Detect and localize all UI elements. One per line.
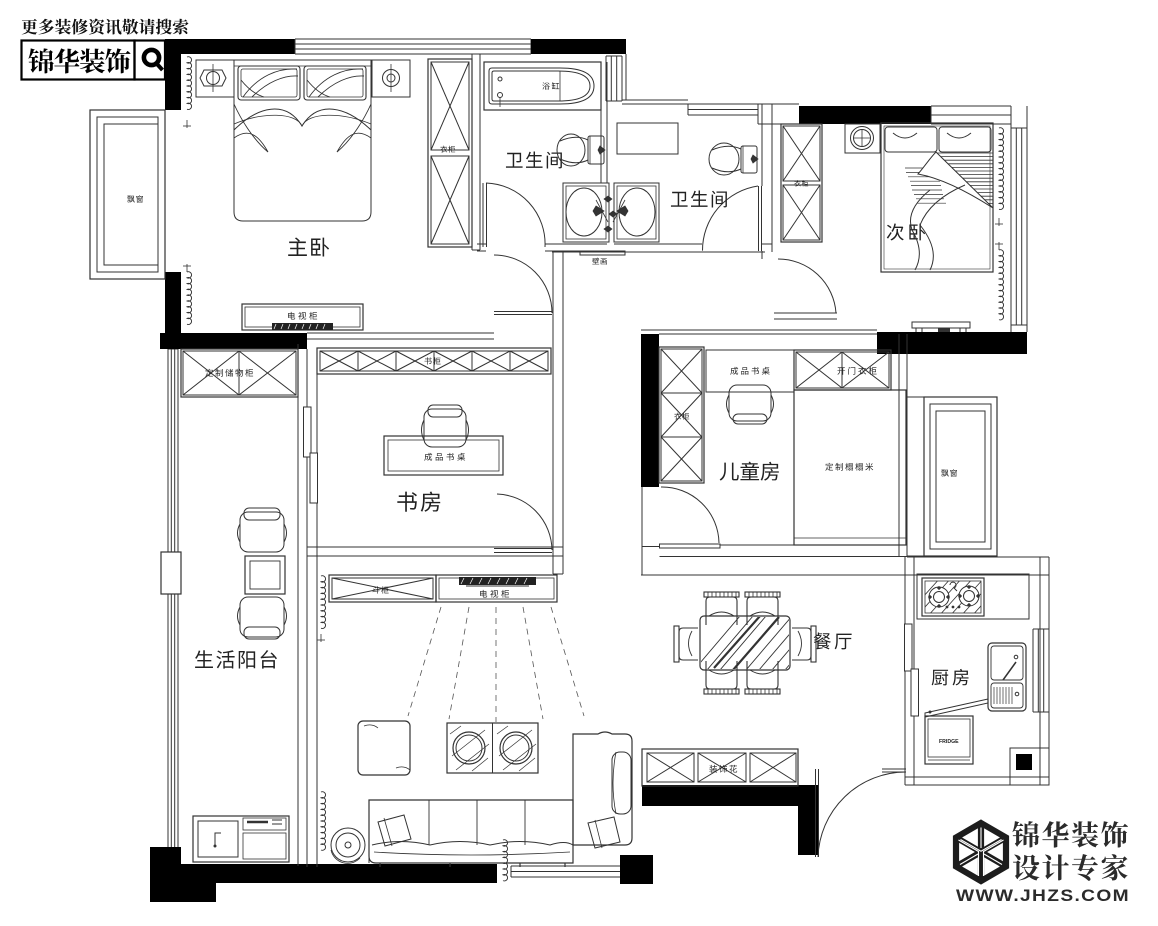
svg-text:FRIDGE: FRIDGE (939, 739, 959, 745)
svg-text:WWW.JHZS.COM: WWW.JHZS.COM (956, 886, 1130, 905)
